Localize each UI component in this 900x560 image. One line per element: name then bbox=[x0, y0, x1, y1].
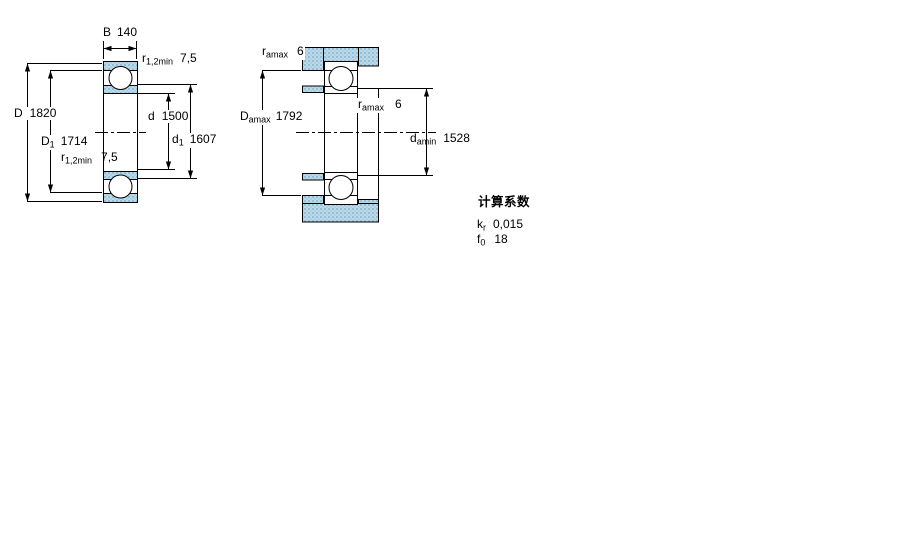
bearing-dimension-figure: B140 r1,2min7,5 D1820 D11714 r1,2min7,5 … bbox=[0, 0, 900, 560]
dim-label-r-top: r1,2min7,5 bbox=[142, 52, 197, 67]
dim-symbol: d bbox=[172, 132, 179, 146]
dim-value: 6 bbox=[395, 97, 402, 111]
dim-symbol: D bbox=[240, 109, 249, 123]
dim-label-r-bottom: r1,2min7,5 bbox=[61, 151, 118, 166]
dim-subscript: amax bbox=[266, 50, 288, 60]
dim-symbol: B bbox=[103, 25, 111, 39]
dim-label-D-amax: Damax1792 bbox=[239, 110, 303, 125]
dim-value: 6 bbox=[297, 44, 304, 58]
dim-symbol: d bbox=[148, 109, 155, 123]
factor-value: 0,015 bbox=[493, 217, 523, 231]
dim-value: 7,5 bbox=[180, 51, 197, 65]
dim-subscript: amax bbox=[362, 103, 384, 113]
factor-kr: kr0,015 bbox=[477, 218, 523, 233]
dim-subscript: 1,2min bbox=[146, 57, 173, 67]
ball-top bbox=[329, 67, 353, 91]
dim-label-r-amax-top: ramax6 bbox=[261, 45, 305, 60]
factor-value: 18 bbox=[494, 232, 507, 246]
dim-value: 7,5 bbox=[101, 150, 118, 164]
dim-subscript: amax bbox=[249, 115, 271, 125]
shaft-shoulder-top bbox=[303, 86, 324, 93]
ball-bottom bbox=[109, 175, 132, 198]
dim-value: 1607 bbox=[190, 132, 217, 146]
dim-label-r-amax-mid: ramax6 bbox=[357, 98, 403, 113]
dim-subscript: 1 bbox=[50, 140, 55, 150]
housing-shoulder-top-left bbox=[303, 48, 324, 71]
factor-subscript: r bbox=[483, 223, 486, 233]
dim-label-d1: d11607 bbox=[171, 133, 217, 148]
dim-subscript: 1,2min bbox=[65, 156, 92, 166]
dim-value: 1714 bbox=[61, 134, 88, 148]
factor-f0: f018 bbox=[477, 233, 508, 248]
dim-value: 1792 bbox=[276, 109, 303, 123]
dim-value: 1500 bbox=[162, 109, 189, 123]
dim-value: 1528 bbox=[443, 131, 470, 145]
dim-label-D: D1820 bbox=[13, 107, 57, 120]
dim-subscript: 1 bbox=[179, 138, 184, 148]
dim-subscript: amin bbox=[417, 137, 437, 147]
dim-value: 140 bbox=[117, 25, 137, 39]
dim-symbol: D bbox=[14, 106, 23, 120]
dim-value: 1820 bbox=[30, 106, 57, 120]
dim-label-D1: D11714 bbox=[40, 135, 88, 150]
dim-symbol: D bbox=[41, 134, 50, 148]
calculation-factors-heading: 计算系数 bbox=[478, 196, 530, 209]
ball-bottom bbox=[329, 176, 353, 200]
bearing-drawing-canvas bbox=[0, 0, 900, 560]
dim-symbol: d bbox=[410, 131, 417, 145]
housing-bottom-band bbox=[303, 204, 379, 223]
ball-top bbox=[109, 67, 132, 90]
dim-label-B: B140 bbox=[101, 26, 139, 39]
factor-subscript: 0 bbox=[480, 238, 485, 248]
housing-top-right bbox=[359, 48, 379, 67]
shaft-shoulder-bottom bbox=[303, 174, 324, 181]
dim-label-d-amin: damin1528 bbox=[410, 132, 470, 147]
dim-label-d: d1500 bbox=[147, 110, 189, 123]
